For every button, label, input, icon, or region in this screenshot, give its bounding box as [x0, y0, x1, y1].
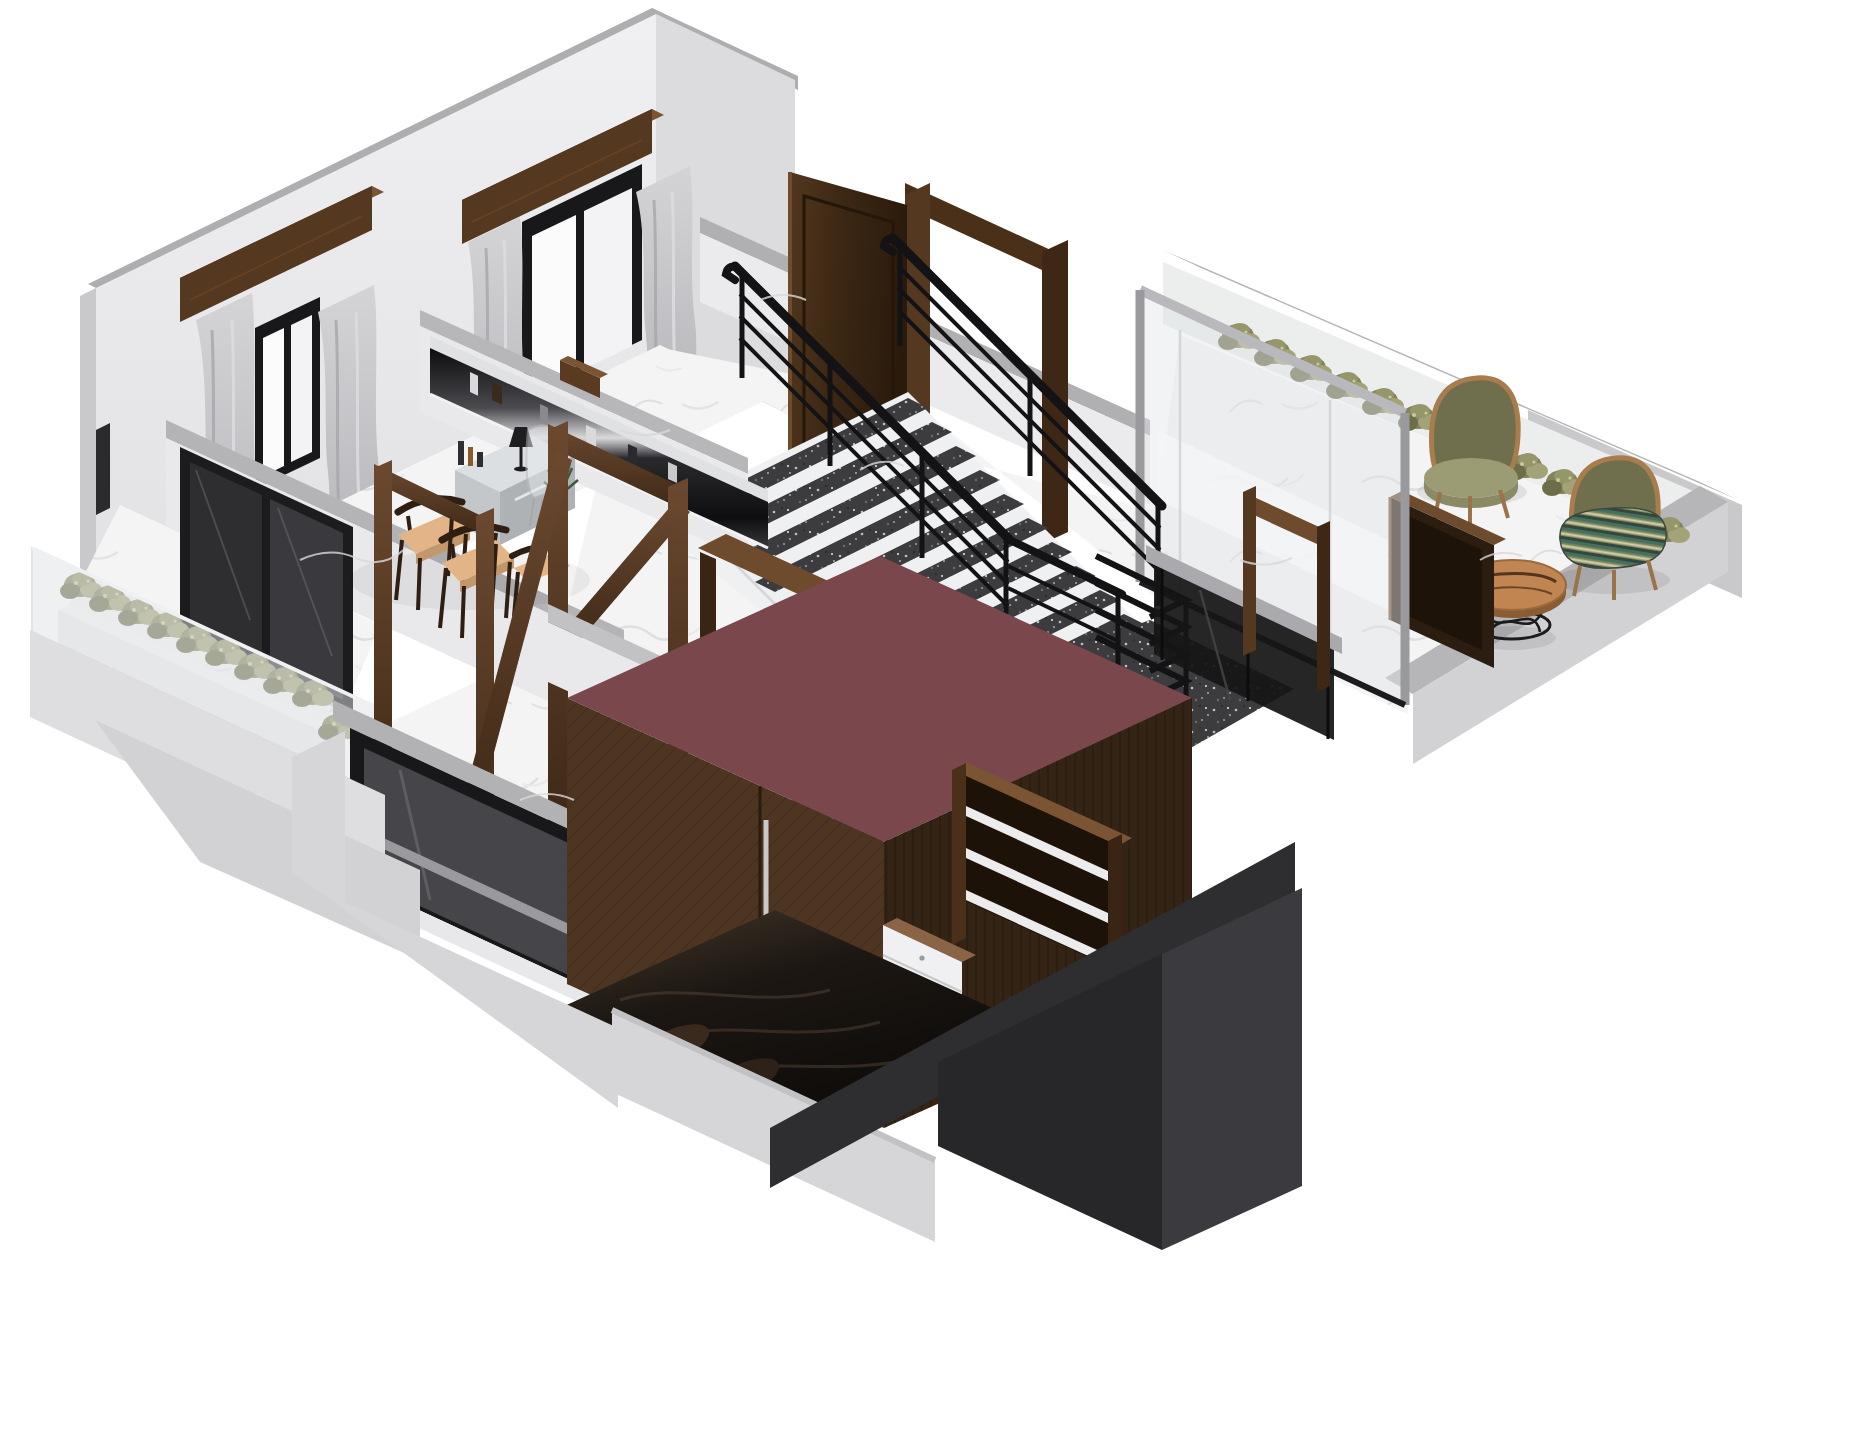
mirror-stile [1317, 521, 1330, 692]
window-1-glass-left [263, 328, 284, 476]
bottle [458, 441, 464, 465]
window-1-glass-right [291, 315, 312, 462]
wall-slit-glass [96, 423, 110, 515]
shelf-stile [952, 763, 966, 945]
window-2-glass-right [584, 188, 632, 369]
mirror-stile [1243, 486, 1256, 656]
drawer-knob [919, 955, 924, 960]
chair-striped-cushion [1560, 508, 1666, 568]
floorplan-render [0, 0, 1860, 1440]
bottle [477, 452, 483, 467]
floorplan-stage [0, 0, 1860, 1440]
window-1 [255, 297, 320, 489]
bottle [468, 447, 473, 466]
